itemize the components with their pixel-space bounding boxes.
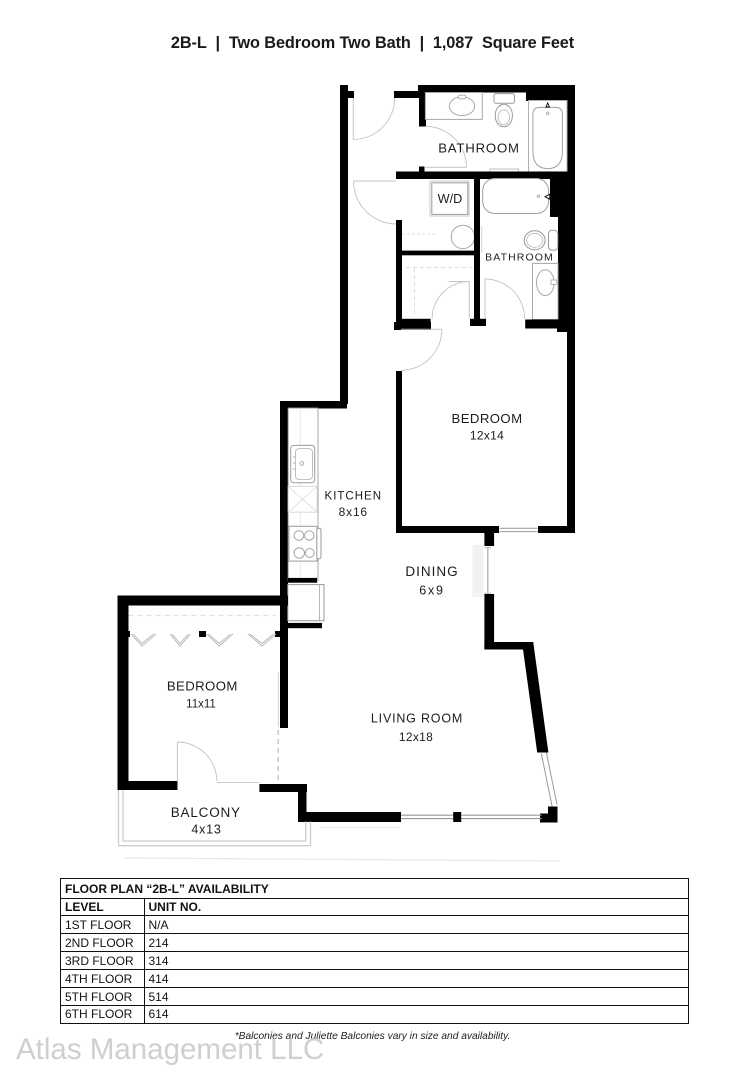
svg-text:8x16: 8x16 xyxy=(339,505,368,519)
svg-text:12x18: 12x18 xyxy=(399,730,433,744)
svg-text:DINING: DINING xyxy=(405,564,458,579)
svg-text:BEDROOM: BEDROOM xyxy=(167,679,238,694)
svg-text:BATHROOM: BATHROOM xyxy=(438,141,520,156)
svg-text:12x14: 12x14 xyxy=(470,429,504,443)
svg-text:W/D: W/D xyxy=(438,192,463,206)
svg-text:BALCONY: BALCONY xyxy=(171,805,241,820)
svg-text:6x9: 6x9 xyxy=(419,584,445,598)
svg-text:BATHROOM: BATHROOM xyxy=(485,251,554,263)
svg-text:4x13: 4x13 xyxy=(191,823,221,837)
svg-text:LIVING ROOM: LIVING ROOM xyxy=(371,712,463,726)
svg-text:BEDROOM: BEDROOM xyxy=(452,411,523,426)
svg-text:KITCHEN: KITCHEN xyxy=(325,491,382,503)
svg-text:11x11: 11x11 xyxy=(186,699,216,711)
